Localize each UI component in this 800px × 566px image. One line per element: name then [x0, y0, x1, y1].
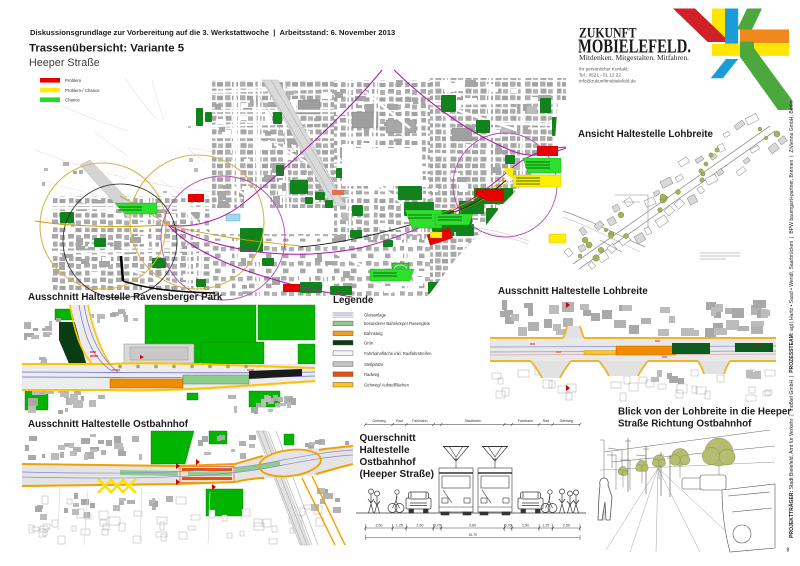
svg-text:Fahrbahn: Fahrbahn: [412, 419, 427, 423]
svg-text:2.50: 2.50: [416, 524, 423, 528]
svg-text:2.50: 2.50: [563, 524, 570, 528]
svg-text:Ausschnitt Haltestelle Ostbahn: Ausschnitt Haltestelle Ostbahnhof: [28, 419, 189, 430]
svg-text:Mitdenken. Mitgestalten. Mitfa: Mitdenken. Mitgestalten. Mitfahren.: [579, 53, 689, 62]
svg-text:1.25: 1.25: [396, 524, 403, 528]
svg-text:Gehweg: Gehweg: [372, 419, 385, 423]
svg-text:1.25: 1.25: [542, 524, 549, 528]
svg-text:Gleisanlage: Gleisanlage: [364, 313, 387, 318]
svg-text:8: 8: [787, 548, 790, 554]
svg-text:Legende: Legende: [333, 295, 374, 306]
svg-text:info@zukunftmobielefeld.de: info@zukunftmobielefeld.de: [579, 79, 636, 84]
svg-text:Grün: Grün: [364, 340, 374, 345]
svg-text:Gehweg: Gehweg: [560, 419, 573, 423]
svg-text:Bahnsteig: Bahnsteig: [364, 331, 383, 336]
svg-text:Rad: Rad: [396, 419, 403, 423]
svg-text:Rad: Rad: [543, 419, 550, 423]
svg-text:Blick von der Lohbreite in die: Blick von der Lohbreite in die Heeper: [618, 407, 791, 418]
svg-text:Chance: Chance: [65, 98, 80, 103]
svg-text:Fahrbahnfläche inkl. Radfahrst: Fahrbahnfläche inkl. Radfahrstreifen: [364, 351, 432, 356]
svg-text:Fahrbahn: Fahrbahn: [518, 419, 533, 423]
svg-text:2.50: 2.50: [376, 524, 383, 528]
svg-text:Ihr persönlicher Kontakt:: Ihr persönlicher Kontakt:: [579, 67, 629, 72]
svg-text:Problem: Problem: [65, 78, 81, 83]
svg-text:Stellplätze: Stellplätze: [364, 362, 384, 367]
svg-text:Ansicht Haltestelle Lohbreite: Ansicht Haltestelle Lohbreite: [578, 129, 714, 140]
svg-text:Problem-/ Chance: Problem-/ Chance: [65, 88, 100, 93]
svg-text:Stadtbahn: Stadtbahn: [465, 419, 481, 423]
svg-text:Querschnitt: Querschnitt: [360, 433, 417, 444]
svg-text:besonderer Bahnkörper Rasengle: besonderer Bahnkörper Rasengleis: [364, 321, 430, 326]
svg-text:(Heeper Straße): (Heeper Straße): [360, 469, 434, 480]
svg-text:Straße Richtung Ostbahnhof: Straße Richtung Ostbahnhof: [618, 419, 752, 430]
svg-text:Tel.: 0521 - 51 12 22: Tel.: 0521 - 51 12 22: [579, 73, 621, 78]
svg-text:2.50: 2.50: [522, 524, 529, 528]
svg-text:Haltestelle: Haltestelle: [360, 445, 410, 456]
svg-text:Ostbahnhof: Ostbahnhof: [360, 457, 417, 468]
svg-text:Gehweg/ Aufstellflächen: Gehweg/ Aufstellflächen: [364, 382, 410, 387]
svg-text:19.70: 19.70: [468, 533, 477, 537]
svg-text:Radweg: Radweg: [364, 372, 380, 377]
svg-text:PROJEKTTRÄGER: Stadt Bielefeld: PROJEKTTRÄGER: Stadt Bielefeld, Amt für …: [788, 100, 795, 538]
svg-text:5.80: 5.80: [469, 524, 476, 528]
svg-text:Ausschnitt Haltestelle Lohbrei: Ausschnitt Haltestelle Lohbreite: [498, 286, 648, 297]
svg-text:0.70: 0.70: [434, 524, 441, 528]
svg-text:Diskussionsgrundlage zur Vorbe: Diskussionsgrundlage zur Vorbereitung au…: [30, 28, 395, 37]
svg-text:0.70: 0.70: [505, 524, 512, 528]
svg-text:Ausschnitt Haltestelle Ravensb: Ausschnitt Haltestelle Ravensberger Park: [28, 292, 223, 303]
svg-text:Heeper Straße: Heeper Straße: [29, 57, 100, 69]
svg-text:Trassenübersicht: Variante 5: Trassenübersicht: Variante 5: [29, 43, 185, 55]
